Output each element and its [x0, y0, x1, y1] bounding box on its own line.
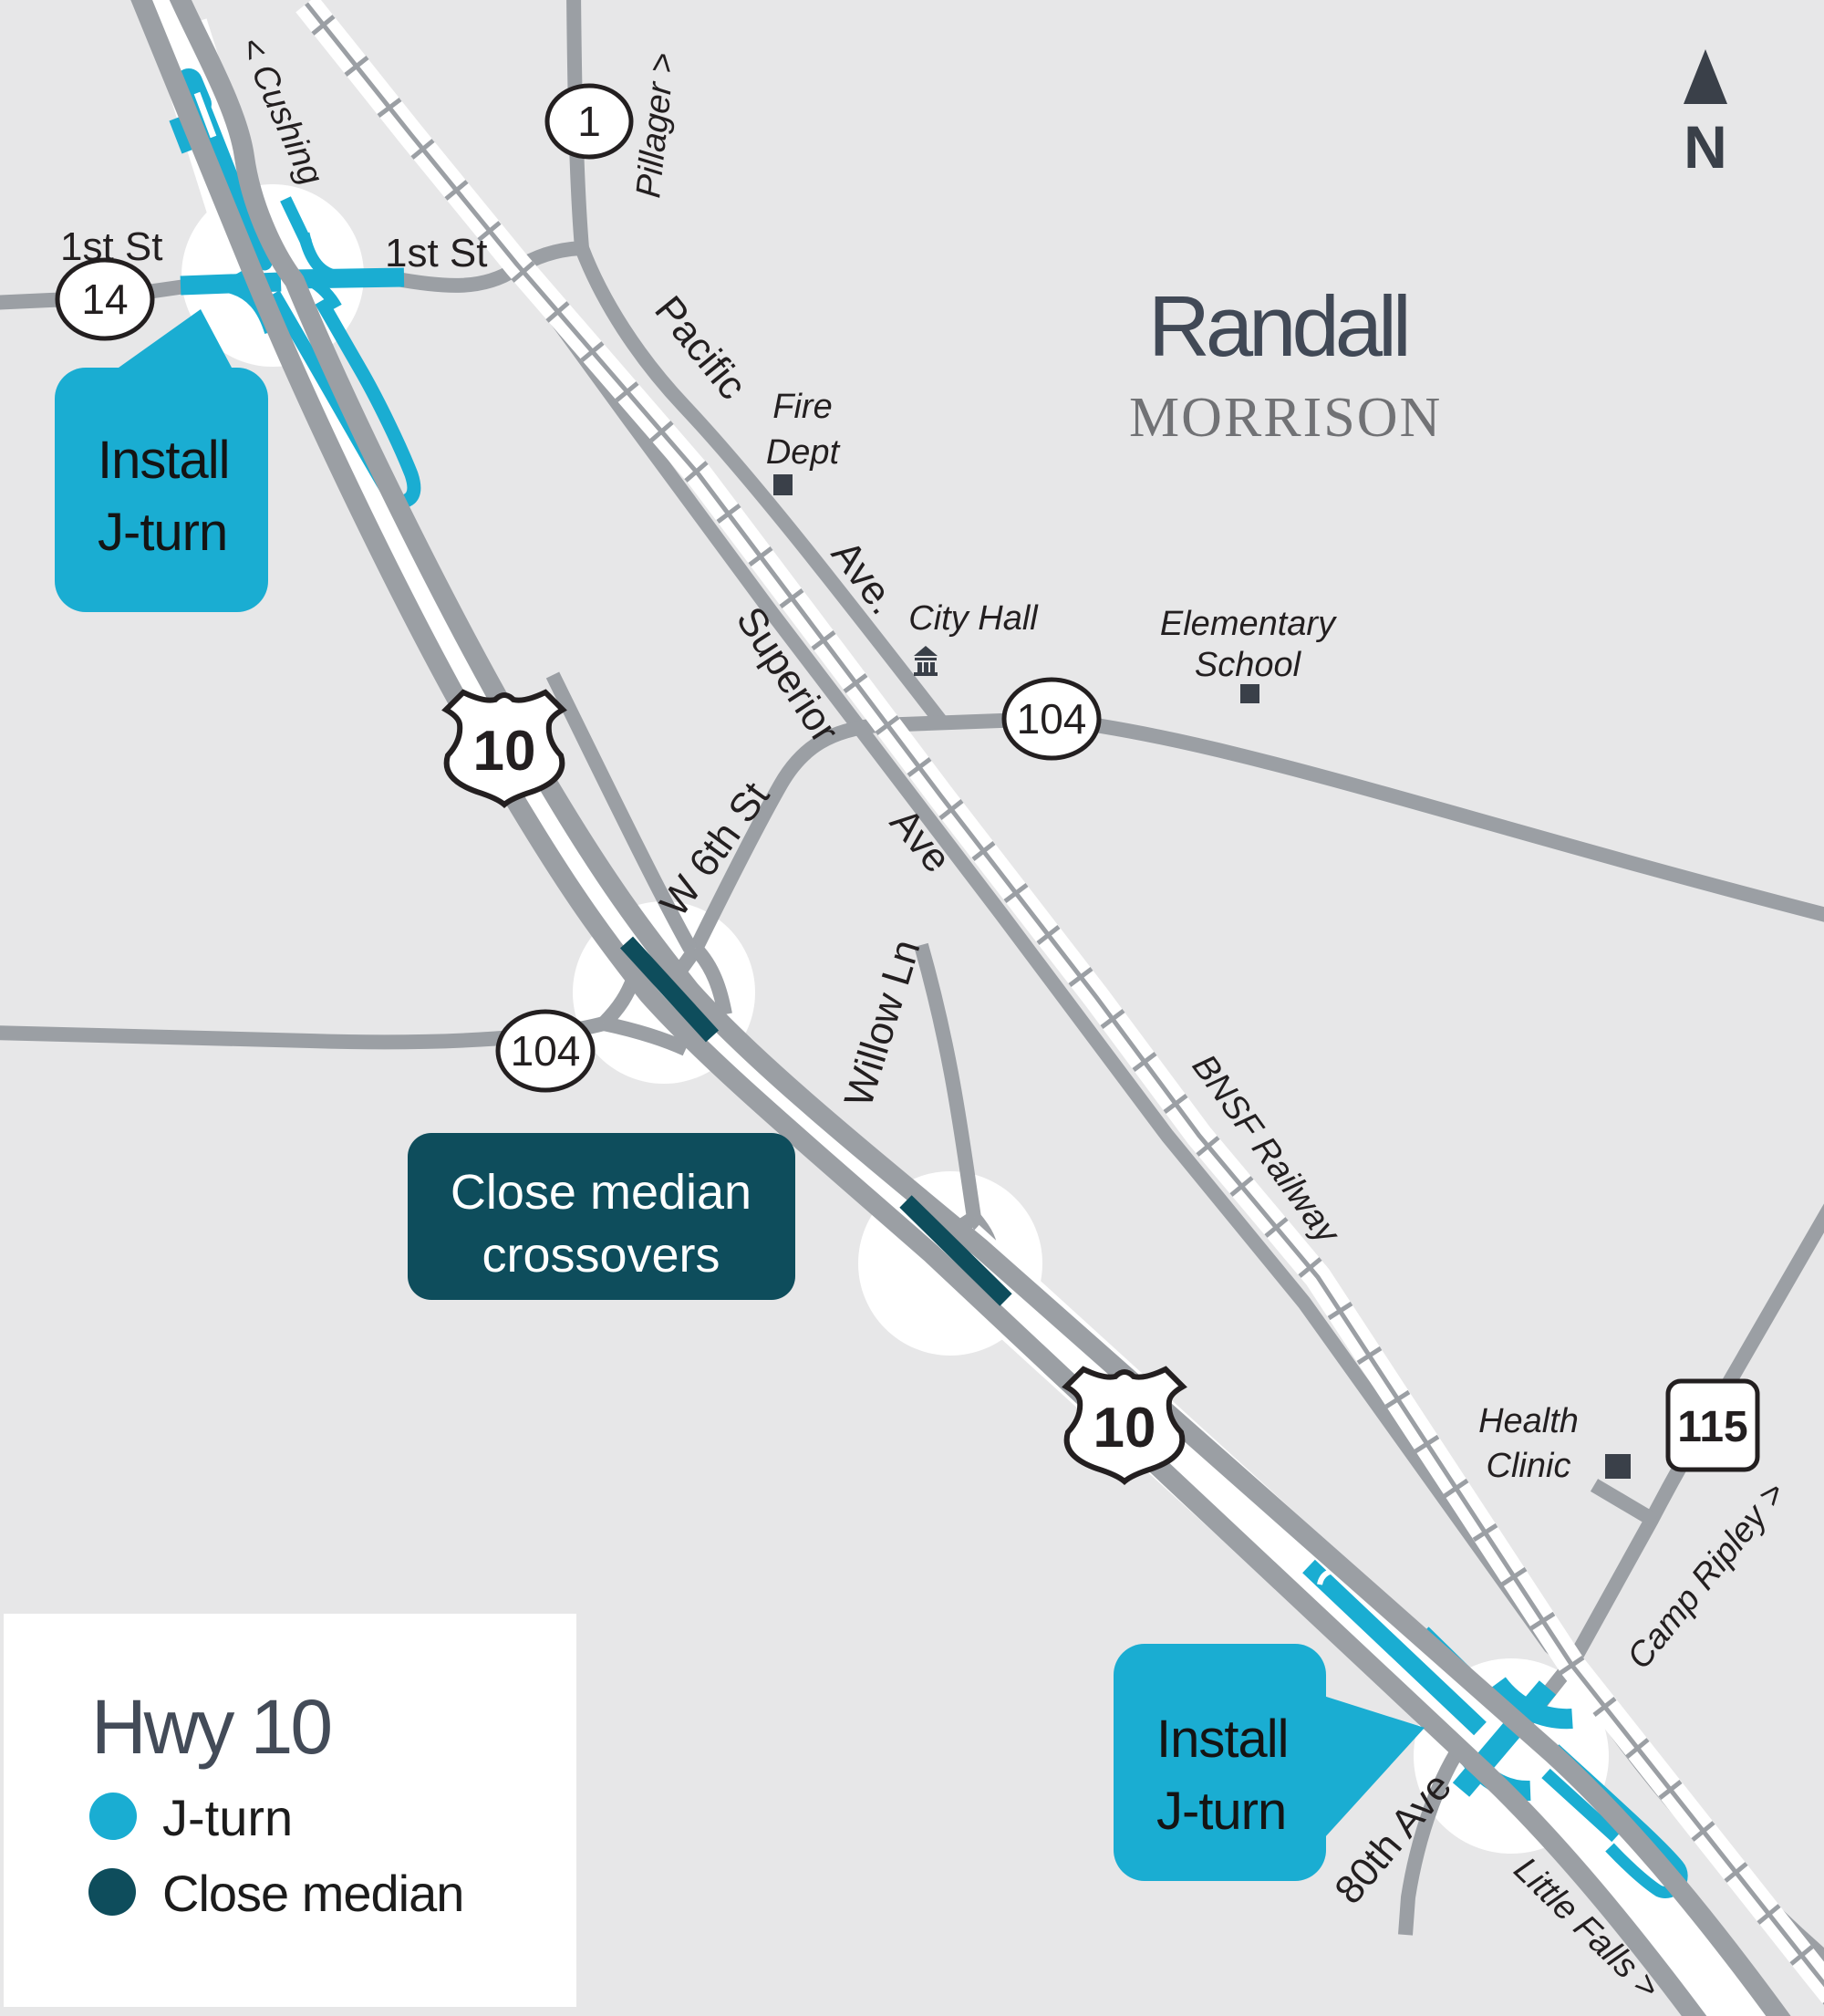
svg-text:Install: Install — [1156, 1709, 1289, 1769]
svg-text:Health: Health — [1478, 1402, 1579, 1440]
svg-text:14: 14 — [81, 275, 128, 323]
svg-text:City Hall: City Hall — [908, 599, 1039, 638]
svg-text:104: 104 — [1017, 695, 1087, 743]
svg-text:J-turn: J-turn — [1156, 1782, 1286, 1841]
svg-text:School: School — [1195, 646, 1302, 684]
svg-text:Fire: Fire — [772, 388, 832, 426]
svg-text:Close median: Close median — [162, 1865, 463, 1922]
svg-text:MORRISON: MORRISON — [1129, 387, 1442, 449]
svg-text:J-turn: J-turn — [162, 1789, 293, 1846]
svg-text:N: N — [1684, 113, 1727, 181]
svg-text:10: 10 — [1093, 1397, 1156, 1460]
svg-text:Dept: Dept — [766, 433, 841, 472]
svg-text:115: 115 — [1677, 1403, 1747, 1451]
svg-text:Randall: Randall — [1148, 278, 1407, 374]
svg-text:Install: Install — [98, 431, 230, 490]
svg-text:Hwy 10: Hwy 10 — [91, 1684, 330, 1770]
svg-text:1st St: 1st St — [385, 231, 488, 275]
svg-text:1: 1 — [577, 98, 601, 145]
svg-text:10: 10 — [473, 720, 536, 783]
svg-text:J-turn: J-turn — [98, 503, 227, 562]
svg-text:crossovers: crossovers — [482, 1228, 720, 1283]
svg-text:Close median: Close median — [451, 1165, 751, 1220]
svg-text:104: 104 — [511, 1027, 581, 1075]
svg-text:Clinic: Clinic — [1487, 1447, 1571, 1485]
svg-text:Elementary: Elementary — [1160, 605, 1337, 643]
